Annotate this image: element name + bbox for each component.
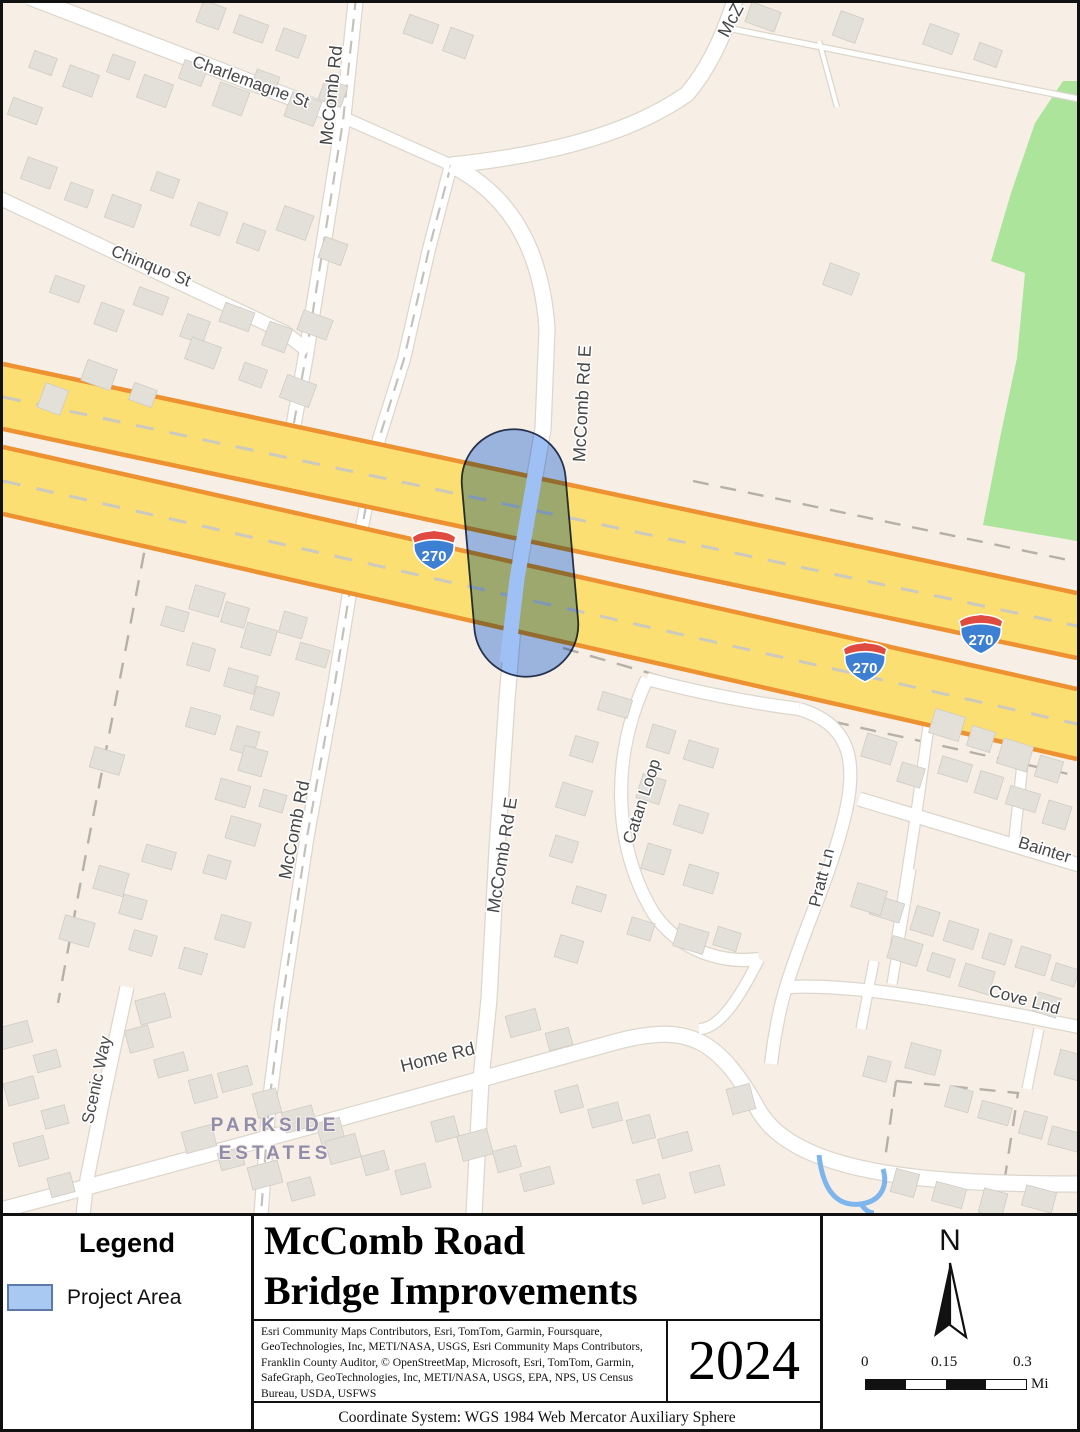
scale-tick-03: 0.3	[1013, 1354, 1032, 1371]
layout-footer: Legend Project Area McComb Road Bridge I…	[3, 1213, 1077, 1432]
shield-number: 270	[968, 632, 993, 649]
map-title-line2: Bridge Improvements	[264, 1266, 810, 1316]
legend-item-label: Project Area	[67, 1286, 181, 1310]
attribution-text: Esri Community Maps Contributors, Esri, …	[254, 1321, 668, 1401]
label-parkside-line2: ESTATES	[219, 1143, 332, 1164]
scale-tick-0: 0	[861, 1354, 869, 1371]
north-label: N	[823, 1224, 1077, 1258]
shield-number: 270	[421, 548, 446, 565]
legend-item-project-area: Project Area	[7, 1284, 181, 1311]
label-parkside-line1: PARKSIDE	[211, 1115, 340, 1136]
map-title: McComb Road Bridge Improvements	[254, 1216, 820, 1321]
legend-title: Legend	[3, 1228, 251, 1259]
attribution-row: Esri Community Maps Contributors, Esri, …	[254, 1321, 820, 1403]
map-layout-page: Charlemagne St McComb Rd McZ Chinquo St …	[0, 0, 1080, 1432]
scale-tick-015: 0.15	[931, 1354, 957, 1371]
legend-panel: Legend Project Area	[3, 1216, 254, 1432]
map-year: 2024	[668, 1321, 820, 1401]
coordinate-system-text: Coordinate System: WGS 1984 Web Mercator…	[254, 1403, 820, 1432]
map-title-line1: McComb Road	[264, 1216, 810, 1266]
scale-bar	[865, 1379, 1027, 1390]
title-panel: McComb Road Bridge Improvements Esri Com…	[254, 1216, 823, 1432]
scale-unit: Mi	[1031, 1376, 1049, 1393]
shield-number: 270	[852, 660, 877, 677]
north-scale-panel: N 0 0.15 0.3 Mi	[823, 1216, 1077, 1432]
map-canvas: Charlemagne St McComb Rd McZ Chinquo St …	[3, 3, 1077, 1213]
project-area-swatch	[7, 1284, 53, 1311]
north-arrow-icon	[920, 1258, 980, 1363]
